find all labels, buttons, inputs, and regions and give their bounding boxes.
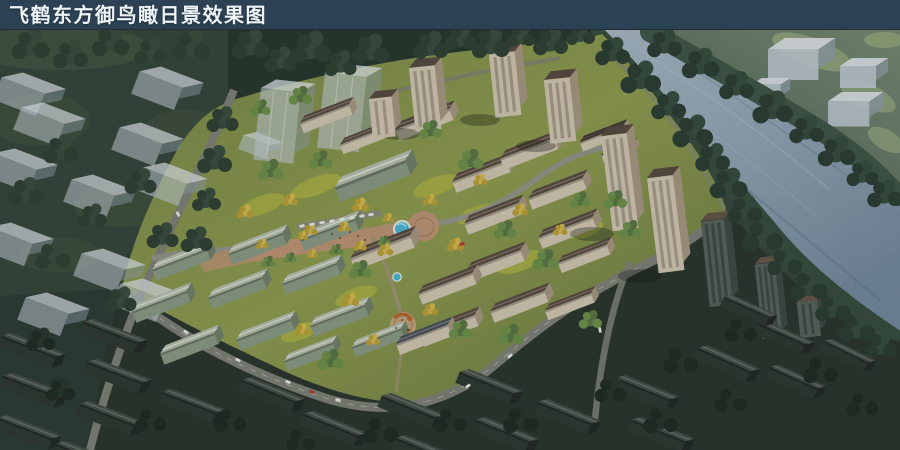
scene-svg bbox=[0, 0, 900, 450]
grain-overlay bbox=[0, 28, 900, 450]
rendering-canvas: 飞鹤东方御鸟瞰日景效果图 bbox=[0, 0, 900, 450]
title-bar: 飞鹤东方御鸟瞰日景效果图 bbox=[0, 0, 900, 30]
title-text: 飞鹤东方御鸟瞰日景效果图 bbox=[0, 0, 267, 30]
